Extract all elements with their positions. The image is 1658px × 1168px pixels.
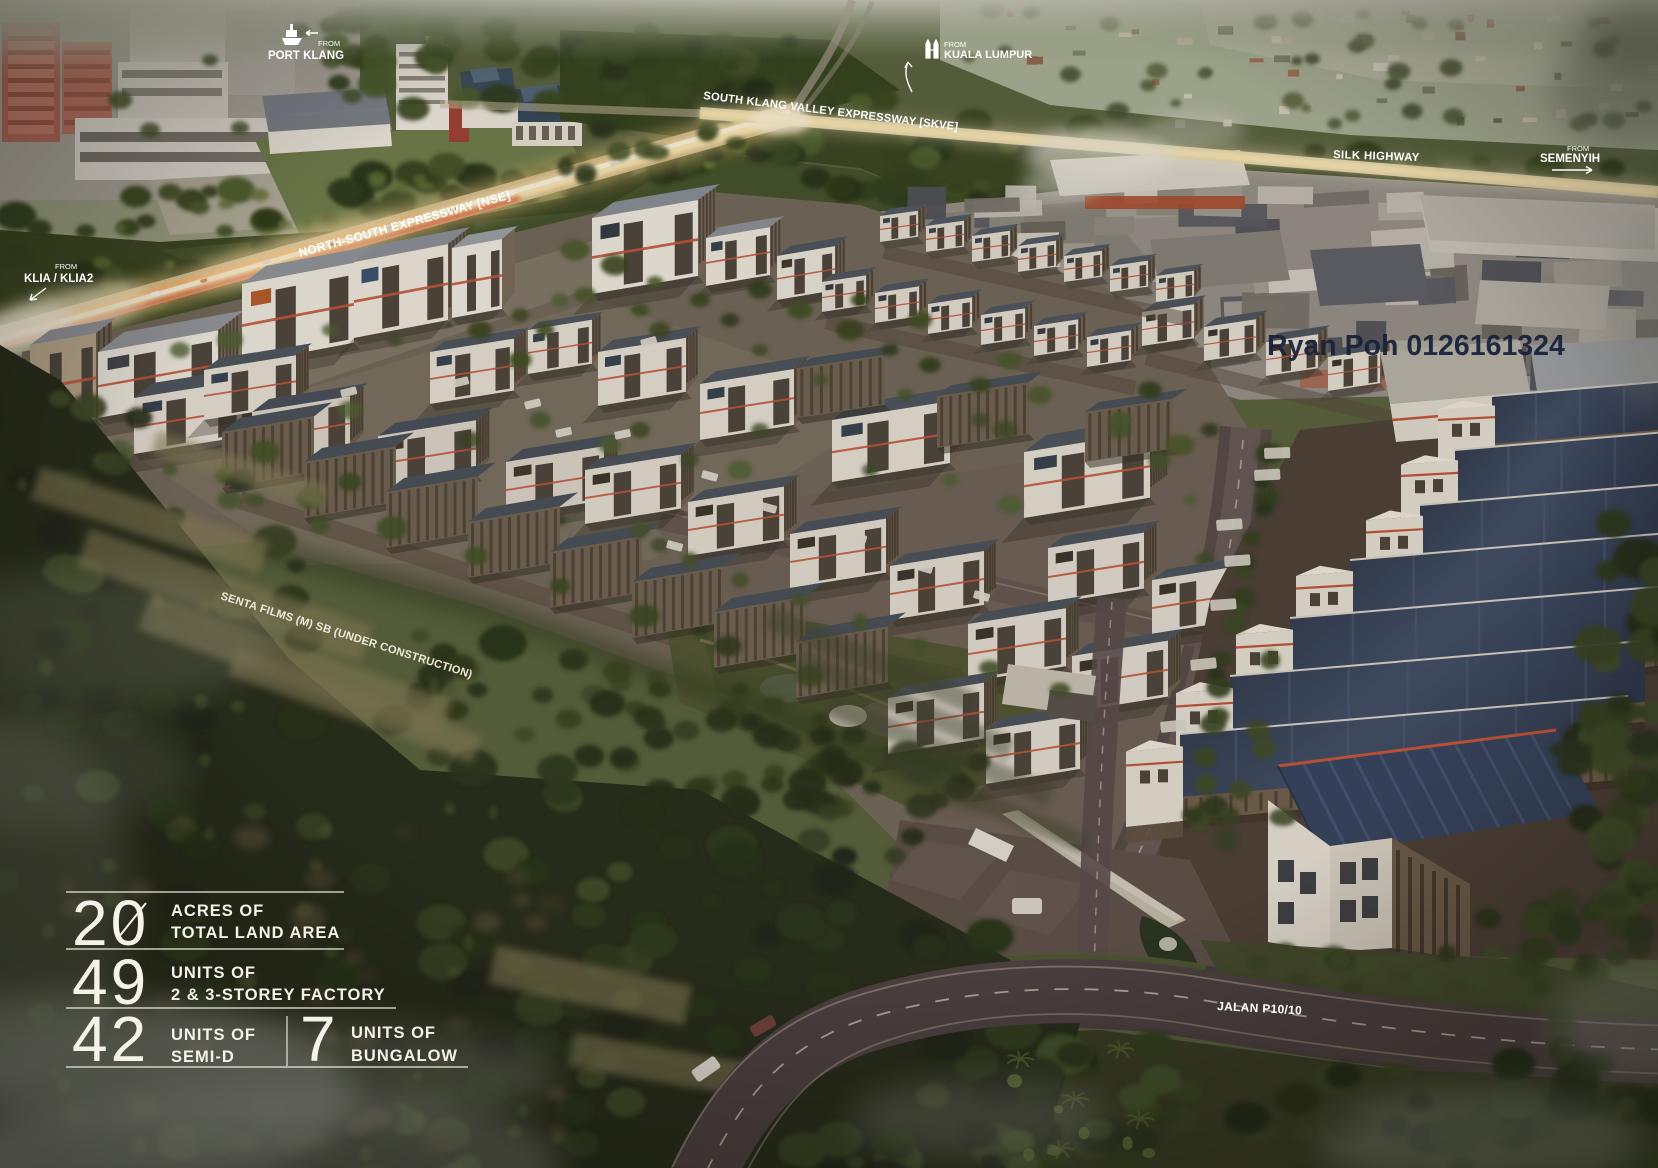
svg-text:KUALA LUMPUR: KUALA LUMPUR xyxy=(944,49,1032,61)
svg-text:FROM: FROM xyxy=(944,40,966,49)
svg-text:KLIA / KLIA2: KLIA / KLIA2 xyxy=(24,273,93,285)
svg-text:7: 7 xyxy=(300,1003,336,1075)
svg-text:TOTAL LAND AREA: TOTAL LAND AREA xyxy=(171,924,340,942)
svg-text:2 & 3-STOREY FACTORY: 2 & 3-STOREY FACTORY xyxy=(171,986,386,1004)
svg-text:FROM: FROM xyxy=(1567,144,1589,153)
svg-text:UNITS OF: UNITS OF xyxy=(171,1026,256,1044)
svg-text:Ryan Poh 0126161324: Ryan Poh 0126161324 xyxy=(1267,330,1565,362)
svg-text:SEMI-D: SEMI-D xyxy=(171,1048,235,1066)
svg-text:FROM: FROM xyxy=(55,262,77,271)
svg-text:UNITS OF: UNITS OF xyxy=(351,1024,436,1042)
svg-text:42: 42 xyxy=(72,1003,149,1075)
svg-text:SEMENYIH: SEMENYIH xyxy=(1540,153,1600,165)
svg-text:FROM: FROM xyxy=(318,39,340,48)
svg-text:ACRES OF: ACRES OF xyxy=(171,902,264,920)
svg-text:PORT KLANG: PORT KLANG xyxy=(268,50,344,62)
svg-text:UNITS OF: UNITS OF xyxy=(171,964,256,982)
svg-text:BUNGALOW: BUNGALOW xyxy=(351,1047,458,1065)
